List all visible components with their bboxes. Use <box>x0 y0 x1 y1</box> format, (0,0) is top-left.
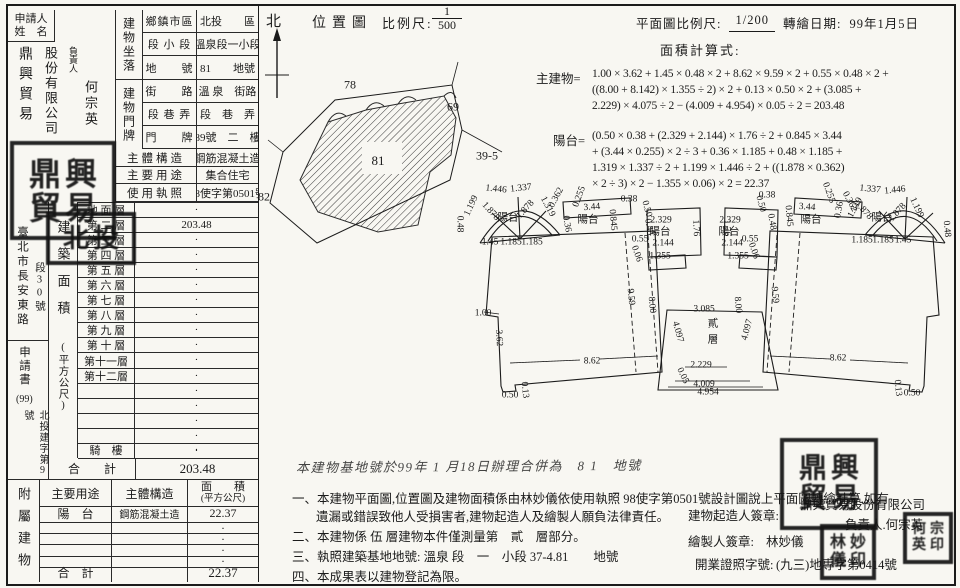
floor-row-value: · <box>135 353 258 367</box>
area-unit: (平方公尺) <box>56 342 71 412</box>
row-value: 集合住宅 <box>196 167 258 184</box>
dim-label: 0.55 <box>632 236 649 245</box>
annex-row: · <box>40 523 258 534</box>
floor-row: 第 八 層· <box>78 308 258 323</box>
annex-use <box>40 534 112 544</box>
seal-stamp: 何宗英印 <box>903 512 953 564</box>
dim-label: 0.13 <box>519 381 529 398</box>
dim-label: 1.185 <box>851 237 872 246</box>
annex-use <box>40 545 112 555</box>
annex-area: · <box>188 534 258 544</box>
dim-label: 4.954 <box>697 389 718 398</box>
dim-label: 0.36 <box>560 215 572 233</box>
dim-label: 2.329 <box>719 217 740 226</box>
floor-row-value: · <box>135 338 258 352</box>
seal-glyph: 林 <box>828 534 848 552</box>
plan-date-label: 轉繪日期: <box>783 13 841 32</box>
map-scale-label: 比例尺: <box>382 13 433 32</box>
dim-label: 8.62 <box>830 355 847 364</box>
parcel-number: 82 <box>258 190 270 205</box>
row-sublabel: 地 號 <box>142 56 196 80</box>
dim-label: 陽台 <box>578 216 599 225</box>
margin-address2: 段30號 <box>32 262 47 313</box>
floor-row: 第 九 層· <box>78 323 258 338</box>
row-label: 使用執照 <box>115 184 196 202</box>
seal-glyph: 興 <box>829 454 861 484</box>
margin-address: 臺北市長安東路 <box>14 226 30 328</box>
parcel-number: 39-5 <box>476 149 498 164</box>
floor-row: 第 六 層· <box>78 278 258 293</box>
annex-structure: 鋼筋混凝土造 <box>112 505 188 522</box>
floor-row-label <box>78 399 135 413</box>
dim-label: 貳 <box>708 320 719 329</box>
dim-label: 0.38 <box>621 196 638 205</box>
dim-label: 8.00 <box>646 296 656 313</box>
seal-glyph: 何 <box>910 522 928 538</box>
drafter-signature-label: 繪製人簽章: <box>688 531 754 550</box>
dim-label: 2.144 <box>652 240 673 249</box>
annex-area: · <box>188 545 258 555</box>
main-formula-line: 1.00 × 3.62 + 1.45 × 0.48 × 2 + 8.62 × 9… <box>592 66 889 82</box>
floor-row-label: 第十二層 <box>78 369 135 383</box>
applicant-rep-name: 何宗英 <box>81 80 100 136</box>
floor-row-label <box>78 414 135 428</box>
calc-title: 面積計算式: <box>660 40 741 59</box>
row-sublabel: 段 小 段 <box>142 33 196 56</box>
annex-area: 22.37 <box>188 505 258 522</box>
dim-label: 0.50 <box>502 392 519 401</box>
floor-row-value: · <box>135 248 258 262</box>
floor-row: · <box>78 384 258 399</box>
dim-label: 1.00 <box>475 310 492 319</box>
dim-label: 0.38 <box>759 192 776 201</box>
floor-row: 第十一層· <box>78 353 258 368</box>
balc-formula-line: + (3.44 × 0.255) × 2 ÷ 3 + 0.36 × 1.185 … <box>592 144 844 160</box>
annex-area: · <box>188 523 258 533</box>
seal-text: 北投 <box>61 225 121 253</box>
row-label: 主要用途 <box>115 167 196 184</box>
annex-rows: 陽 台鋼筋混凝土造22.37···· <box>40 505 258 568</box>
handwritten-merge-note: 本建物基地號於99年 1 月18日辦理合併為 8 1 地號 <box>296 455 642 476</box>
building-door-label: 建物門牌 <box>115 80 142 149</box>
annex-side-label: 附屬建物 <box>8 479 40 582</box>
row-value: 鋼筋混凝土造 <box>196 149 258 167</box>
floor-row-value: · <box>135 399 258 413</box>
note-line: 三、執照建築基地地號: 溫泉 段 一 小段 37-4.81 地號 <box>292 546 618 565</box>
row-value: 81 地號 <box>196 56 258 80</box>
row-sublabel: 鄉鎮市區 <box>142 10 196 33</box>
margin-column: 臺北市長安東路 段30號 申請書 (99) 北投建字第9號 <box>8 202 48 479</box>
annex-row: · <box>40 545 258 556</box>
main-building-formula: 1.00 × 3.62 + 1.45 × 0.48 × 2 + 8.62 × 9… <box>592 66 889 114</box>
drafter-signature-name: 林妙儀 <box>766 531 804 550</box>
margin-caseno: 北投建字第9號 <box>20 410 50 479</box>
dim-label: 8.00 <box>732 296 742 313</box>
row-value: 98使字第0501號 <box>196 184 258 202</box>
balc-formula-line: (0.50 × 0.38 + (2.329 + 2.144) × 1.76 ÷ … <box>592 128 844 144</box>
dim-label: 1.355 <box>727 253 748 262</box>
seal-glyph: 投 <box>91 225 121 253</box>
applicant-company-1: 鼎興貿易 <box>14 46 34 136</box>
row-sublabel: 門 牌 <box>142 126 196 149</box>
main-formula-line: 2.229) × 4.075 ÷ 2 − (4.009 + 4.954) × 0… <box>592 98 889 114</box>
annex-use <box>40 523 112 533</box>
dim-label: 2.229 <box>690 362 711 371</box>
floor-row-value: 203.48 <box>135 218 258 232</box>
dim-label: 3.62 <box>493 329 503 346</box>
dim-label: 2.329 <box>650 217 671 226</box>
annex-total-row: 合 計 22.37 <box>40 563 258 582</box>
floor-row-label <box>78 384 135 398</box>
seal-glyph: 儀 <box>828 552 848 570</box>
survey-document-page: 申請人姓 名 鼎興貿易 股份有限公司 負責人 何宗英 建物坐落 建物門牌 建築面… <box>0 0 960 588</box>
dim-label: 1.185 <box>521 239 542 248</box>
floor-row-value: · <box>135 308 258 322</box>
seal-text: 鼎興貿易 <box>797 454 861 514</box>
plan-date-value: 99年1月5日 <box>849 13 919 32</box>
annex-structure <box>112 534 188 544</box>
note-line: 四、本成果表以建物登記為限。 <box>292 566 467 585</box>
dim-label: 1.76 <box>690 219 700 236</box>
floor-row-label: 第 七 層 <box>78 293 135 307</box>
dim-label: 0.13 <box>892 379 902 396</box>
floor-row: 第十二層· <box>78 369 258 384</box>
floor-row-value: · <box>135 263 258 277</box>
dim-label: 3.44 <box>583 203 600 213</box>
dim-label: 9.59 <box>625 288 635 305</box>
floor-row-label: 第 八 層 <box>78 308 135 322</box>
arcade-row: 騎 樓 · <box>78 441 258 459</box>
row-value: 段 巷 弄 <box>196 103 258 126</box>
annex-header-row: 主要用途 主體構造 面 積(平方公尺) <box>40 479 258 507</box>
seal-glyph: 印 <box>848 552 868 570</box>
seal-glyph: 貿 <box>797 484 829 514</box>
applicant-label: 申請人姓 名 <box>8 10 55 42</box>
floor-row-label: 第 五 層 <box>78 263 135 277</box>
row-value: 北投 區 <box>196 10 258 33</box>
floor-row-label: 第十一層 <box>78 353 135 367</box>
note-line: 二、本建物係 伍 層建物本件僅測量第 貳 層部分。 <box>292 526 586 545</box>
seal-stamp: 北投 <box>46 212 136 265</box>
seal-stamp: 鼎興貿易 <box>780 438 878 530</box>
dim-label: 0.48 <box>455 216 464 233</box>
floor-row-label: 第 九 層 <box>78 323 135 337</box>
balc-formula-line: 1.319 × 1.337 ÷ 2 + 1.199 × 1.446 ÷ 2 + … <box>592 160 844 176</box>
annex-use: 陽 台 <box>40 505 112 522</box>
margin-year: (99) <box>16 394 33 405</box>
builder-signature-label: 建物起造人簽章: <box>688 505 779 524</box>
applicant-company-2: 股份有限公司 <box>41 46 60 136</box>
annex-structure <box>112 545 188 555</box>
dim-label: 0.845 <box>783 205 794 227</box>
dim-label: 0.48 <box>765 213 777 231</box>
floor-row: · <box>78 414 258 429</box>
floor-row-value: · <box>135 323 258 337</box>
dim-label: 1.185 <box>872 237 893 246</box>
dim-label: 1.45 <box>482 239 499 248</box>
dim-label: 0.845 <box>607 209 618 231</box>
dim-label: 2.144 <box>721 240 742 249</box>
balcony-label: 陽台= <box>553 130 585 149</box>
row-value: 89號 二 樓 <box>196 126 258 149</box>
seal-text: 林妙儀印 <box>828 534 868 570</box>
annex-row: 陽 台鋼筋混凝土造22.37 <box>40 505 258 523</box>
floor-row-value: · <box>135 293 258 307</box>
license-label: 開業證照字號: <box>695 554 773 573</box>
floor-row: · <box>78 399 258 414</box>
floor-row-value: · <box>135 233 258 247</box>
seal-glyph: 北 <box>61 225 91 253</box>
seal-glyph: 宗 <box>928 522 946 538</box>
annex-row: · <box>40 534 258 545</box>
plan-scale-value: 1/200 <box>729 13 774 32</box>
parcel-number: 81 <box>372 153 385 169</box>
seal-glyph: 興 <box>63 157 99 191</box>
row-label: 主體構造 <box>115 149 196 167</box>
row-value: 溫泉段一小段 <box>196 33 258 56</box>
floor-row: 第 五 層· <box>78 263 258 278</box>
floor-row-value: · <box>135 414 258 428</box>
dim-label: 陽台 <box>801 216 822 225</box>
dim-label: 3.085 <box>693 306 714 315</box>
floor-row-value: · <box>135 278 258 292</box>
dim-label: 1.355 <box>649 253 670 262</box>
seal-glyph: 妙 <box>848 534 868 552</box>
annex-structure <box>112 523 188 533</box>
map-title: 位置圖 <box>312 12 372 32</box>
row-value: 溫 泉 街路 <box>196 80 258 103</box>
seal-glyph: 易 <box>829 484 861 514</box>
margin-application: 申請書 <box>16 346 32 387</box>
note-line: 遺漏或錯誤致他人受損害者,建物起造人及繪製人願負法律責任。 <box>316 506 669 525</box>
dim-label: 3.44 <box>798 203 815 213</box>
floor-row-label: 第 六 層 <box>78 278 135 292</box>
floor-row: 第 十 層· <box>78 338 258 353</box>
parcel-number: 78 <box>344 78 356 93</box>
seal-glyph: 印 <box>928 538 946 554</box>
dim-label: 層 <box>708 336 719 345</box>
dim-label: 9.59 <box>769 286 779 303</box>
dim-label: 1.185 <box>500 239 521 248</box>
dim-label: 陽台 <box>719 228 740 237</box>
dim-label: 陽台 <box>650 228 671 237</box>
applicant-rep-label: 負責人 <box>67 46 80 136</box>
applicant-name: 鼎興貿易 股份有限公司 負責人 何宗英 <box>14 46 100 136</box>
floor-row-label: 第 十 層 <box>78 338 135 352</box>
parcel-number: 69 <box>447 100 459 115</box>
dim-label: 0.50 <box>904 390 921 399</box>
plan-header: 平面圖比例尺: 1/200 轉繪日期: 99年1月5日 <box>636 13 919 32</box>
floor-row-value: · <box>135 384 258 398</box>
dim-label: 1.45 <box>895 237 912 246</box>
building-location-label: 建物坐落 <box>115 10 142 80</box>
plan-scale-label: 平面圖比例尺: <box>636 13 721 32</box>
row-sublabel: 段 巷 弄 <box>142 103 196 126</box>
map-scale-fraction: 1500 <box>432 5 462 32</box>
seal-glyph: 英 <box>910 538 928 554</box>
floor-row: 第 七 層· <box>78 293 258 308</box>
seal-glyph: 鼎 <box>797 454 829 484</box>
floor-row-value: · <box>135 203 258 217</box>
floor-total-row: 合 計 203.48 <box>48 458 259 480</box>
main-building-label: 主建物= <box>536 68 581 87</box>
seal-glyph: 鼎 <box>27 157 63 191</box>
main-formula-line: ((8.00 + 8.142) × 1.355 ÷ 2) × 2 + 0.13 … <box>592 82 889 98</box>
seal-stamp: 林妙儀印 <box>820 524 876 580</box>
floor-row-value: · <box>135 369 258 383</box>
dim-label: 0.48 <box>941 220 951 237</box>
seal-text: 何宗英印 <box>910 522 946 554</box>
row-sublabel: 街 路 <box>142 80 196 103</box>
dim-label: 8.62 <box>584 358 601 367</box>
